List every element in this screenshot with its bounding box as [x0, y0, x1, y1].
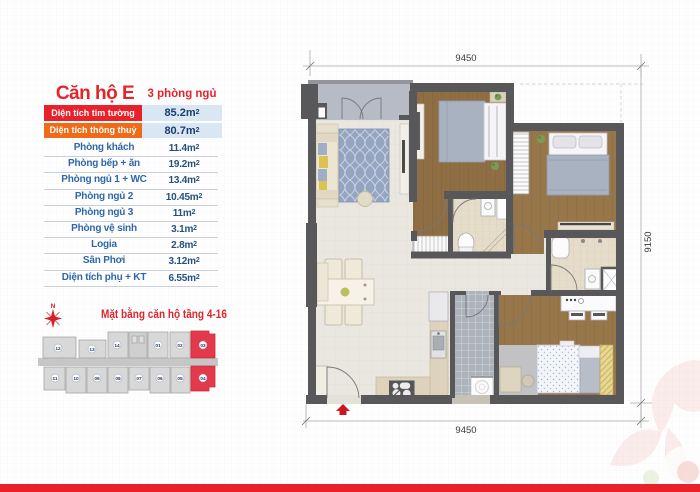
svg-text:9450: 9450 [455, 53, 476, 64]
svg-text:02: 02 [177, 343, 183, 349]
svg-text:10: 10 [73, 376, 79, 382]
svg-text:13: 13 [89, 347, 95, 353]
svg-text:9150: 9150 [643, 231, 654, 252]
svg-text:07: 07 [136, 376, 142, 382]
svg-text:04: 04 [200, 376, 206, 382]
svg-text:06: 06 [157, 376, 163, 382]
svg-text:11: 11 [52, 376, 57, 382]
svg-text:09: 09 [94, 376, 100, 382]
svg-text:01: 01 [155, 343, 161, 349]
svg-text:14: 14 [114, 343, 120, 349]
svg-text:N: N [51, 303, 56, 310]
svg-text:12: 12 [55, 346, 61, 352]
svg-text:03: 03 [200, 343, 206, 349]
svg-text:9450: 9450 [455, 425, 476, 436]
svg-text:05: 05 [177, 376, 183, 382]
svg-text:08: 08 [115, 376, 121, 382]
